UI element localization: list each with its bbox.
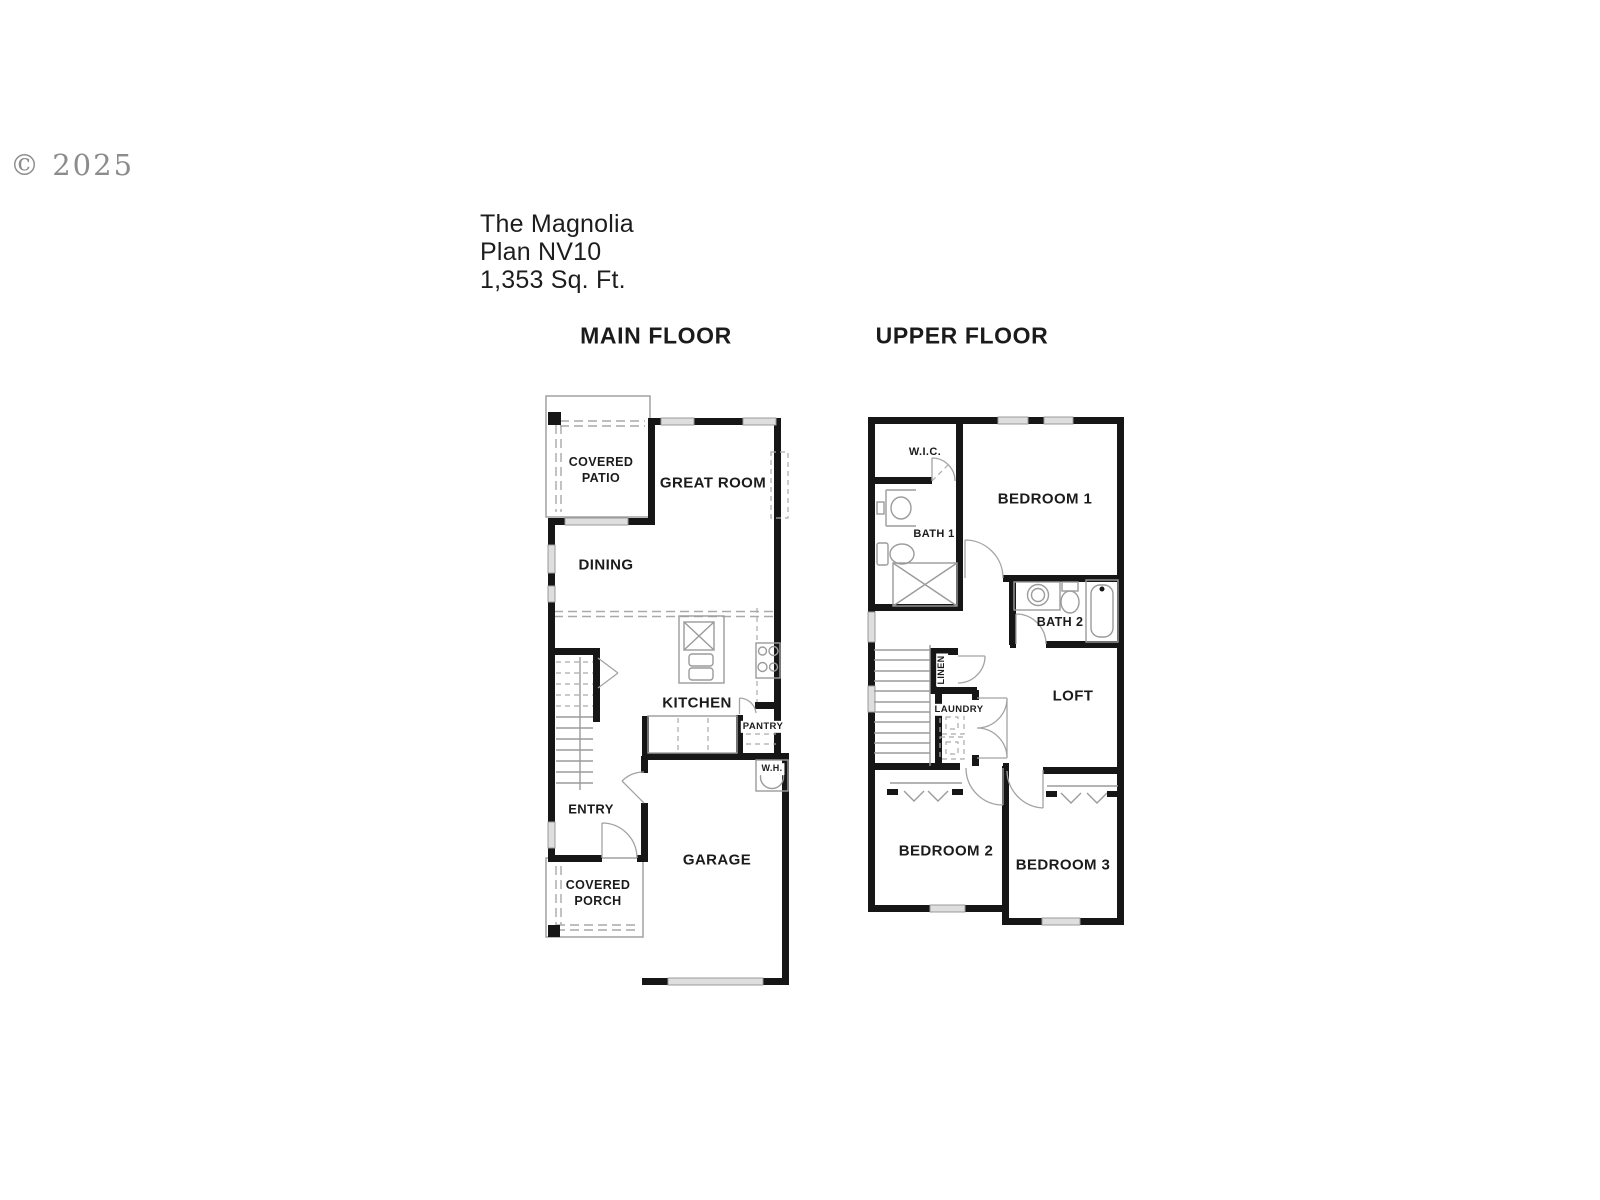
main-stairs xyxy=(556,657,593,790)
floor-plan-sheet: © 2025 The Magnolia Plan NV10 1,353 Sq. … xyxy=(0,0,1600,1200)
room-label-bedroom2: BEDROOM 2 xyxy=(899,841,993,861)
room-label-linen: LINEN xyxy=(936,654,948,687)
room-label-garage: GARAGE xyxy=(683,850,751,870)
room-label-bath1: BATH 1 xyxy=(913,527,954,541)
room-label-water-heater: W.H. xyxy=(759,763,784,775)
bathtub-icon xyxy=(1086,580,1118,642)
room-label-dining: DINING xyxy=(579,555,634,575)
room-label-wic: W.I.C. xyxy=(909,445,941,459)
upper-stairs xyxy=(874,645,930,766)
pantry-door-swing xyxy=(740,698,757,714)
stairwell-window xyxy=(868,686,875,712)
stairwell-window xyxy=(868,612,875,642)
room-label-kitchen: KITCHEN xyxy=(662,693,731,713)
kitchen-island-icon xyxy=(679,616,724,683)
dining-window xyxy=(548,586,555,602)
bedroom1-door-swing xyxy=(965,540,1003,578)
room-label-covered-patio: COVERED PATIO xyxy=(569,454,634,487)
porch-post xyxy=(548,925,560,937)
pantry-shelves xyxy=(746,734,776,744)
great-room-window xyxy=(743,418,776,425)
front-door-swing xyxy=(602,823,637,858)
room-label-bedroom1: BEDROOM 1 xyxy=(998,489,1092,509)
room-label-great-room: GREAT ROOM xyxy=(660,473,766,493)
kitchen-counter-icon xyxy=(648,716,737,753)
bedroom3-door-swing xyxy=(1007,770,1043,808)
bedroom1-window xyxy=(998,417,1028,424)
bedroom1-window xyxy=(1044,417,1073,424)
room-label-entry: ENTRY xyxy=(568,802,614,819)
room-label-laundry: LAUNDRY xyxy=(933,704,986,716)
linen-door-swing xyxy=(958,656,985,683)
bedroom2-door-swing xyxy=(966,768,1003,805)
dining-window xyxy=(548,545,555,573)
garage-door xyxy=(668,978,763,985)
bedroom2-closet xyxy=(887,783,963,801)
washer-dryer-icon xyxy=(940,712,964,759)
wic-door-radial xyxy=(932,465,948,481)
room-label-bedroom3: BEDROOM 3 xyxy=(1016,855,1110,875)
great-room-window xyxy=(661,418,694,425)
bath2-sink-icon xyxy=(1014,582,1060,610)
bedroom3-closet xyxy=(1046,786,1118,803)
bedroom3-window xyxy=(1042,918,1080,925)
room-label-covered-porch: COVERED PORCH xyxy=(566,877,631,910)
bath2-toilet-icon xyxy=(1061,582,1079,613)
patio-post xyxy=(548,412,561,425)
entry-window xyxy=(548,822,555,848)
patio-sliding-door xyxy=(565,518,628,525)
garage-entry-door-swing xyxy=(622,772,644,803)
plan-linework xyxy=(0,0,1600,1200)
stair-closet-door xyxy=(598,658,618,688)
bath1-sink-icon xyxy=(877,490,916,526)
bedroom2-window xyxy=(930,905,965,912)
dining-kitchen-dashed-line xyxy=(554,612,775,617)
shower-icon xyxy=(893,563,957,606)
room-label-pantry: PANTRY xyxy=(741,721,785,733)
bath1-toilet-icon xyxy=(877,543,914,565)
room-label-bath2: BATH 2 xyxy=(1037,614,1084,630)
room-label-loft: LOFT xyxy=(1053,686,1094,706)
